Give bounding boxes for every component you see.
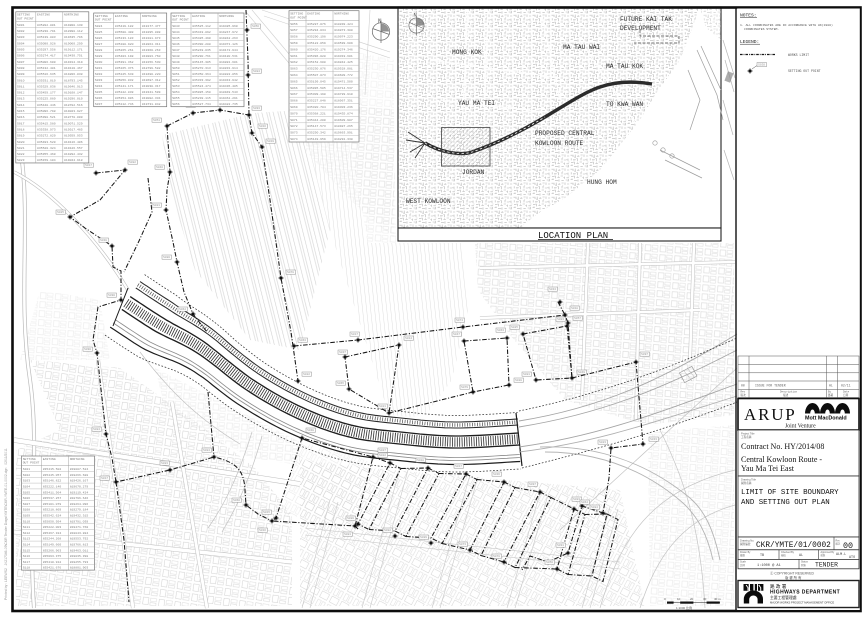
svg-text:S117: S117: [23, 560, 31, 564]
svg-text:835419.892: 835419.892: [192, 30, 211, 34]
svg-text:S019: S019: [267, 140, 274, 143]
svg-text:S028: S028: [515, 379, 522, 382]
svg-text:835507.073: 835507.073: [307, 73, 326, 77]
svg-text:819126.557: 819126.557: [64, 146, 83, 150]
svg-text:Printed by : LEEWS2 J:\21734: Printed by : LEEWS2 J:\217346-09\CKR Ten…: [4, 448, 8, 600]
svg-text:835338.973: 835338.973: [37, 127, 56, 131]
svg-text:819436.485: 819436.485: [219, 84, 238, 88]
svg-text:S021: S021: [153, 204, 160, 207]
svg-text:S033: S033: [650, 438, 657, 441]
svg-text:S115: S115: [23, 548, 31, 552]
svg-text:S057: S057: [290, 28, 298, 32]
svg-text:835396.028: 835396.028: [307, 54, 326, 58]
svg-text:00: 00: [741, 384, 745, 388]
svg-text:835294.034: 835294.034: [307, 28, 326, 32]
svg-text:818793.145: 818793.145: [64, 78, 83, 82]
svg-text:835149.660: 835149.660: [43, 543, 62, 547]
svg-text:819835.398: 819835.398: [70, 554, 89, 558]
svg-text:S062: S062: [290, 60, 298, 64]
svg-text:S013: S013: [17, 97, 25, 101]
svg-text:S066: S066: [290, 86, 298, 90]
svg-text:1:1000 比例: 1:1000 比例: [676, 605, 692, 610]
svg-text:S047: S047: [453, 333, 460, 336]
svg-text:819177.477: 819177.477: [142, 24, 161, 28]
svg-text:繪圖: 繪圖: [740, 553, 745, 557]
svg-text:835112.746: 835112.746: [115, 102, 134, 106]
svg-text:比例: 比例: [740, 563, 745, 567]
svg-text:OUT POINT: OUT POINT: [95, 18, 112, 22]
svg-text:819430.751: 819430.751: [64, 54, 83, 58]
svg-text:835459.177: 835459.177: [37, 91, 56, 95]
svg-text:S082: S082: [384, 529, 391, 532]
svg-text:S044: S044: [172, 30, 180, 34]
svg-text:S040: S040: [156, 166, 163, 169]
svg-text:S067: S067: [290, 92, 298, 96]
svg-text:835101.079: 835101.079: [43, 502, 62, 506]
svg-text:819082.334: 819082.334: [142, 96, 161, 100]
svg-text:819116.406: 819116.406: [64, 140, 83, 144]
svg-text:835152.608: 835152.608: [307, 60, 326, 64]
svg-text:S050: S050: [546, 561, 553, 564]
svg-text:S037: S037: [95, 102, 103, 106]
svg-text:835297.558: 835297.558: [37, 48, 56, 52]
svg-text:S118: S118: [23, 566, 31, 570]
svg-text:S060: S060: [290, 47, 298, 51]
svg-text:835266.963: 835266.963: [43, 548, 62, 552]
svg-text:S106: S106: [23, 496, 31, 500]
svg-text:S027: S027: [95, 42, 103, 46]
svg-text:S016: S016: [259, 125, 266, 128]
svg-text:835050.954: 835050.954: [43, 519, 62, 523]
svg-text:S112: S112: [23, 531, 31, 535]
svg-text:835056.032: 835056.032: [115, 78, 134, 82]
svg-text:819842.263: 819842.263: [219, 36, 238, 40]
svg-text:NORTHING: NORTHING: [334, 12, 349, 16]
svg-text:835125.649: 835125.649: [115, 72, 134, 76]
svg-text:S025: S025: [57, 211, 64, 214]
svg-text:Project Title: Project Title: [741, 432, 755, 436]
svg-text:819646.913: 819646.913: [64, 84, 83, 88]
svg-text:MONG KOK: MONG KOK: [452, 49, 482, 56]
svg-text:Drawing Title: Drawing Title: [741, 478, 757, 482]
svg-text:819292.432: 819292.432: [64, 152, 83, 156]
svg-text:S009: S009: [17, 72, 25, 76]
svg-text:版次: 版次: [836, 542, 841, 546]
svg-text:835445.057: 835445.057: [43, 473, 62, 477]
svg-text:S025: S025: [95, 30, 103, 34]
svg-text:S102: S102: [23, 473, 31, 477]
svg-text:835147.573: 835147.573: [307, 124, 326, 128]
svg-text:819274.346: 819274.346: [334, 47, 353, 51]
svg-text:835272.820: 835272.820: [37, 134, 56, 138]
svg-text:TO KWA WAN: TO KWA WAN: [606, 101, 643, 108]
svg-text:819789.910: 819789.910: [334, 92, 353, 96]
svg-text:S023: S023: [17, 158, 25, 162]
svg-text:工程名稱: 工程名稱: [741, 435, 752, 439]
svg-text:主要工程管理處: 主要工程管理處: [770, 595, 797, 600]
svg-text:S063: S063: [299, 339, 306, 342]
svg-text:S110: S110: [23, 519, 31, 523]
svg-text:S027: S027: [379, 449, 386, 452]
svg-text:OUT POINT: OUT POINT: [17, 16, 34, 20]
svg-text:Mott MacDonald: Mott MacDonald: [805, 416, 847, 422]
svg-text:狀態: 狀態: [801, 563, 806, 567]
svg-text:EASTING: EASTING: [37, 13, 50, 17]
svg-text:S054: S054: [172, 90, 180, 94]
svg-text:835141.171: 835141.171: [115, 84, 134, 88]
svg-text:S008: S008: [17, 66, 25, 70]
svg-text:S025: S025: [511, 326, 518, 329]
svg-text:819490.220: 819490.220: [142, 72, 161, 76]
svg-text:PROPOSED CENTRAL: PROPOSED CENTRAL: [535, 130, 595, 137]
svg-text:819255.793: 819255.793: [70, 560, 89, 564]
svg-text:NORTHING: NORTHING: [64, 13, 79, 17]
svg-text:835188.920: 835188.920: [115, 42, 134, 46]
svg-text:819044.918: 819044.918: [64, 158, 83, 162]
svg-text:Drawing No.: Drawing No.: [740, 539, 755, 543]
svg-text:YAU MA TEI: YAU MA TEI: [458, 100, 495, 107]
svg-text:AL: AL: [799, 554, 803, 558]
svg-text:S010: S010: [17, 78, 25, 82]
svg-text:S104: S104: [23, 485, 31, 489]
svg-text:S064: S064: [290, 73, 298, 77]
svg-text:S017: S017: [101, 477, 108, 480]
svg-text:S005: S005: [17, 48, 25, 52]
svg-text:835354.906: 835354.906: [115, 96, 134, 100]
svg-text:EASTING: EASTING: [192, 14, 205, 18]
svg-text:835390.288: 835390.288: [192, 42, 211, 46]
svg-text:835244.268: 835244.268: [43, 537, 62, 541]
svg-text:819110.467: 819110.467: [64, 66, 83, 70]
svg-text:835093.375: 835093.375: [43, 554, 62, 558]
svg-text:S080: S080: [163, 256, 170, 259]
svg-text:S103: S103: [23, 479, 31, 483]
svg-text:835290.198: 835290.198: [307, 35, 326, 39]
svg-text:835524.474: 835524.474: [192, 84, 211, 88]
svg-text:S109: S109: [23, 514, 31, 518]
svg-text:835537.257: 835537.257: [43, 496, 62, 500]
svg-text:835368.221: 835368.221: [307, 111, 326, 115]
svg-text:818801.903: 818801.903: [70, 566, 89, 570]
svg-text:835444.200: 835444.200: [307, 118, 326, 122]
svg-text:S079: S079: [461, 386, 468, 389]
svg-text:819471.760: 819471.760: [70, 525, 89, 529]
svg-text:HIGHWAYS DEPARTMENT: HIGHWAYS DEPARTMENT: [770, 590, 840, 596]
svg-text:版 權 所 有: 版 權 所 有: [785, 575, 802, 580]
svg-text:835415.502: 835415.502: [43, 467, 62, 471]
svg-text:835139.883: 835139.883: [37, 35, 56, 39]
svg-text:819883.760: 819883.760: [142, 54, 161, 58]
svg-text:S050: S050: [172, 66, 180, 70]
svg-text:版次: 版次: [741, 393, 747, 397]
svg-text:835421.676: 835421.676: [43, 566, 62, 570]
svg-text:835448.446: 835448.446: [37, 103, 56, 107]
svg-text:835145.305: 835145.305: [192, 60, 211, 64]
svg-text:S065: S065: [290, 79, 298, 83]
svg-text:S063: S063: [497, 329, 504, 332]
svg-text:S046: S046: [172, 42, 180, 46]
svg-text:835329.038: 835329.038: [37, 84, 56, 88]
svg-text:819461.291: 819461.291: [219, 96, 238, 100]
svg-text:S063: S063: [290, 67, 298, 71]
svg-text:S060: S060: [233, 499, 240, 502]
svg-text:835165.376: 835165.376: [115, 66, 134, 70]
svg-text:819559.953: 819559.953: [64, 134, 83, 138]
svg-text:835159.104: 835159.104: [37, 158, 56, 162]
svg-text:S083: S083: [161, 462, 168, 465]
svg-text:835403.198: 835403.198: [115, 54, 134, 58]
svg-text:S113: S113: [23, 537, 31, 541]
svg-text:S057: S057: [574, 317, 581, 320]
svg-text:835508.408: 835508.408: [115, 30, 134, 34]
svg-text:S043: S043: [172, 24, 180, 28]
svg-text:S028: S028: [95, 48, 103, 52]
svg-text:818778.000: 818778.000: [64, 115, 83, 119]
svg-text:S024: S024: [95, 24, 103, 28]
svg-text:819206.038: 819206.038: [64, 72, 83, 76]
svg-text:S064: S064: [179, 308, 186, 311]
svg-text:835355.460: 835355.460: [37, 152, 56, 156]
svg-text:S055: S055: [172, 96, 180, 100]
svg-text:S011: S011: [17, 84, 25, 88]
svg-text:S078: S078: [287, 271, 294, 274]
svg-text:835309.198: 835309.198: [307, 92, 326, 96]
svg-text:835122.059: 835122.059: [307, 41, 326, 45]
svg-text:819071.529: 819071.529: [64, 121, 83, 125]
svg-text:S012: S012: [17, 91, 25, 95]
svg-text:835274.417: 835274.417: [37, 54, 56, 58]
svg-text:EASTING: EASTING: [115, 14, 128, 18]
svg-text:819528.081: 819528.081: [334, 67, 353, 71]
svg-text:S090: S090: [108, 294, 115, 297]
svg-text:819609.987: 819609.987: [334, 118, 353, 122]
svg-text:S084: S084: [253, 70, 260, 73]
svg-text:819060.299: 819060.299: [64, 41, 83, 45]
svg-text:818864.311: 818864.311: [142, 42, 161, 46]
svg-text:S074: S074: [456, 319, 463, 322]
svg-text:818843.884: 818843.884: [70, 531, 89, 535]
svg-text:S056: S056: [290, 22, 298, 26]
svg-text:S038: S038: [100, 239, 107, 242]
svg-text:AL: AL: [829, 384, 833, 388]
svg-text:819791.039: 819791.039: [70, 519, 89, 523]
svg-text:S022: S022: [379, 454, 386, 457]
svg-text:819432.315: 819432.315: [70, 514, 89, 518]
svg-text:S031: S031: [95, 66, 103, 70]
svg-text:1:1000 @ A1: 1:1000 @ A1: [757, 563, 781, 568]
svg-text:835350.364: 835350.364: [192, 72, 211, 76]
svg-text:835485.490: 835485.490: [192, 36, 211, 40]
svg-text:S072: S072: [290, 124, 298, 128]
svg-text:S015: S015: [17, 109, 25, 113]
svg-text:NORTHING: NORTHING: [142, 14, 157, 18]
svg-text:S082: S082: [129, 161, 136, 164]
svg-text:835149.959: 835149.959: [307, 137, 326, 141]
svg-text:ARUP: ARUP: [744, 405, 797, 424]
svg-text:819038.317: 819038.317: [142, 84, 161, 88]
svg-text:S056: S056: [172, 102, 180, 106]
svg-text:819599.609: 819599.609: [334, 41, 353, 45]
svg-text:S017: S017: [455, 465, 462, 468]
svg-text:835146.822: 835146.822: [43, 479, 62, 483]
svg-text:835132.481: 835132.481: [37, 66, 56, 70]
svg-text:TENDER: TENDER: [815, 562, 838, 569]
svg-text:Ⓒ COPYRIGHT RESERVED: Ⓒ COPYRIGHT RESERVED: [770, 571, 815, 576]
svg-text:30: 30: [703, 597, 707, 601]
svg-text:835420.176: 835420.176: [307, 47, 326, 51]
svg-text:819023.927: 819023.927: [64, 109, 83, 113]
svg-text:818799.582: 818799.582: [142, 66, 161, 70]
svg-text:819119.424: 819119.424: [70, 490, 89, 494]
svg-text:S034: S034: [95, 84, 103, 88]
svg-text:835391.362: 835391.362: [115, 60, 134, 64]
svg-text:S029: S029: [95, 54, 103, 58]
svg-text:S018: S018: [17, 127, 25, 131]
svg-text:835542.624: 835542.624: [43, 514, 62, 518]
svg-text:S002: S002: [17, 29, 25, 33]
svg-text:20: 20: [690, 597, 694, 601]
svg-text:OUT POINT: OUT POINT: [172, 18, 189, 22]
svg-text:S015: S015: [263, 511, 270, 514]
svg-text:OUT POINT: OUT POINT: [23, 461, 40, 465]
svg-text:S081: S081: [523, 373, 530, 376]
svg-text:819426.167: 819426.167: [70, 479, 89, 483]
svg-text:S084: S084: [591, 506, 598, 509]
svg-text:SETTING OUT POINT: SETTING OUT POINT: [788, 69, 821, 73]
svg-text:S064: S064: [581, 501, 588, 504]
svg-text:835516.635: 835516.635: [37, 72, 56, 76]
svg-text:S078: S078: [493, 555, 500, 558]
svg-text:S080: S080: [347, 517, 354, 520]
svg-text:819296.010: 819296.010: [64, 97, 83, 101]
svg-text:S004: S004: [17, 41, 25, 45]
svg-text:WORKS LIMIT: WORKS LIMIT: [788, 53, 809, 57]
svg-text:MA TAU WAI: MA TAU WAI: [563, 44, 600, 51]
svg-text:835225.089: 835225.089: [37, 97, 56, 101]
svg-text:S034: S034: [549, 288, 556, 291]
svg-text:835410.912: 835410.912: [43, 560, 62, 564]
svg-text:S016: S016: [17, 115, 25, 119]
svg-text:AND SETTING OUT PLAN: AND SETTING OUT PLAN: [741, 499, 830, 507]
svg-text:819314.319: 819314.319: [64, 60, 83, 64]
svg-text:WEST KOWLOON: WEST KOWLOON: [406, 198, 451, 205]
svg-text:NORTHING: NORTHING: [219, 14, 234, 18]
svg-text:圖則名稱: 圖則名稱: [741, 481, 752, 485]
svg-text:S021: S021: [379, 405, 386, 408]
svg-text:819873.388: 819873.388: [334, 28, 353, 32]
svg-text:819343.942: 819343.942: [219, 78, 238, 82]
svg-text:835085.158: 835085.158: [192, 90, 211, 94]
svg-text:S084: S084: [203, 449, 210, 452]
svg-text:S101: S101: [23, 467, 31, 471]
svg-text:S049: S049: [172, 60, 180, 64]
svg-text:835096.798: 835096.798: [37, 109, 56, 113]
svg-text:835250.342: 835250.342: [307, 131, 326, 135]
svg-text:819264.096: 819264.096: [70, 502, 89, 506]
svg-text:S051: S051: [172, 72, 180, 76]
svg-text:835282.801: 835282.801: [37, 23, 56, 27]
svg-text:819635.796: 819635.796: [64, 35, 83, 39]
svg-text:819341.509: 819341.509: [142, 90, 161, 94]
svg-text:簽署: 簽署: [828, 393, 834, 397]
svg-text:S083: S083: [573, 498, 580, 501]
svg-text:CKR/YMTE/01/0002: CKR/YMTE/01/0002: [756, 542, 831, 550]
svg-text:819887.524: 819887.524: [70, 467, 89, 471]
svg-text:819360.263: 819360.263: [142, 48, 161, 52]
svg-text:835419.182: 835419.182: [115, 24, 134, 28]
svg-text:819731.042: 819731.042: [142, 102, 161, 106]
svg-text:S051: S051: [153, 119, 160, 122]
svg-text:835222.140: 835222.140: [43, 485, 62, 489]
svg-text:819766.813: 819766.813: [70, 543, 89, 547]
svg-text:S019: S019: [17, 134, 25, 138]
svg-text:819156.530: 819156.530: [142, 60, 161, 64]
svg-text:819553.792: 819553.792: [70, 537, 89, 541]
svg-text:818822.856: 818822.856: [219, 72, 238, 76]
svg-text:S018: S018: [417, 459, 424, 462]
svg-text:S045: S045: [172, 36, 180, 40]
svg-text:819247.972: 819247.972: [219, 30, 238, 34]
svg-text:S022: S022: [303, 373, 310, 376]
svg-text:S090: S090: [84, 348, 91, 351]
svg-text:S069: S069: [290, 105, 298, 109]
svg-text:S026: S026: [95, 36, 103, 40]
svg-text:S105: S105: [23, 490, 31, 494]
svg-text:S021: S021: [17, 146, 25, 150]
svg-text:835531.010: 835531.010: [37, 78, 56, 82]
svg-text:835238.115: 835238.115: [192, 96, 211, 100]
svg-text:835249.035: 835249.035: [192, 48, 211, 52]
svg-text:S116: S116: [23, 554, 31, 558]
svg-text:S084: S084: [93, 428, 100, 431]
svg-text:835520.324: 835520.324: [37, 146, 56, 150]
svg-text:40 m: 40 m: [714, 597, 721, 601]
svg-text:S073: S073: [290, 131, 298, 135]
svg-text:S091: S091: [557, 544, 564, 547]
svg-text:S049: S049: [578, 371, 585, 374]
svg-text:818967.351: 818967.351: [334, 99, 353, 103]
svg-text:COORDINATES SYSTEM.: COORDINATES SYSTEM.: [744, 27, 779, 31]
svg-text:S023: S023: [599, 441, 606, 444]
svg-text:S056: S056: [252, 25, 259, 28]
svg-text:S108: S108: [23, 508, 31, 512]
svg-text:835493.520: 835493.520: [37, 140, 56, 144]
svg-text:819279.184: 819279.184: [70, 508, 89, 512]
svg-text:835086.600: 835086.600: [37, 60, 56, 64]
svg-text:ISSUE FOR TENDER: ISSUE FOR TENDER: [755, 384, 786, 388]
svg-text:S035: S035: [95, 90, 103, 94]
svg-text:819108.147: 819108.147: [64, 91, 83, 95]
svg-text:DEVELOPMENT: DEVELOPMENT: [620, 25, 661, 32]
svg-text:819663.991: 819663.991: [334, 131, 353, 135]
svg-text:S073: S073: [459, 543, 466, 546]
svg-text:S061: S061: [290, 54, 298, 58]
svg-text:819180.531: 819180.531: [219, 54, 238, 58]
svg-text:819517.485: 819517.485: [64, 127, 83, 131]
svg-text:819112.171: 819112.171: [64, 48, 83, 52]
svg-text:819471.500: 819471.500: [334, 79, 353, 83]
svg-text:S018: S018: [571, 307, 578, 310]
svg-text:JORDAN: JORDAN: [462, 169, 485, 176]
svg-text:835333.392: 835333.392: [192, 78, 211, 82]
svg-text:S017: S017: [85, 164, 92, 167]
svg-text:819609.772: 819609.772: [334, 73, 353, 77]
svg-text:819172.944: 819172.944: [219, 48, 238, 52]
svg-text:S022: S022: [17, 152, 25, 156]
svg-text:描述: 描述: [783, 393, 789, 397]
svg-text:OUT POINT: OUT POINT: [290, 15, 307, 19]
svg-text:S017: S017: [351, 333, 358, 336]
